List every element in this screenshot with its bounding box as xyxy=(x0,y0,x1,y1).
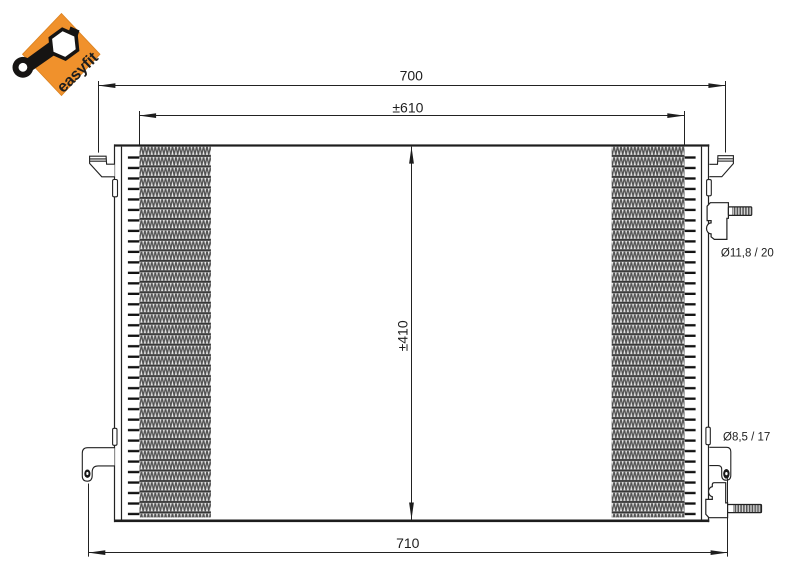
svg-text:710: 710 xyxy=(396,535,420,551)
svg-text:700: 700 xyxy=(400,68,424,84)
svg-text:Ø8,5 / 17: Ø8,5 / 17 xyxy=(723,432,770,444)
svg-text:±410: ±410 xyxy=(394,320,410,351)
svg-text:Ø11,8 / 20: Ø11,8 / 20 xyxy=(721,247,774,259)
svg-text:±610: ±610 xyxy=(392,99,423,115)
